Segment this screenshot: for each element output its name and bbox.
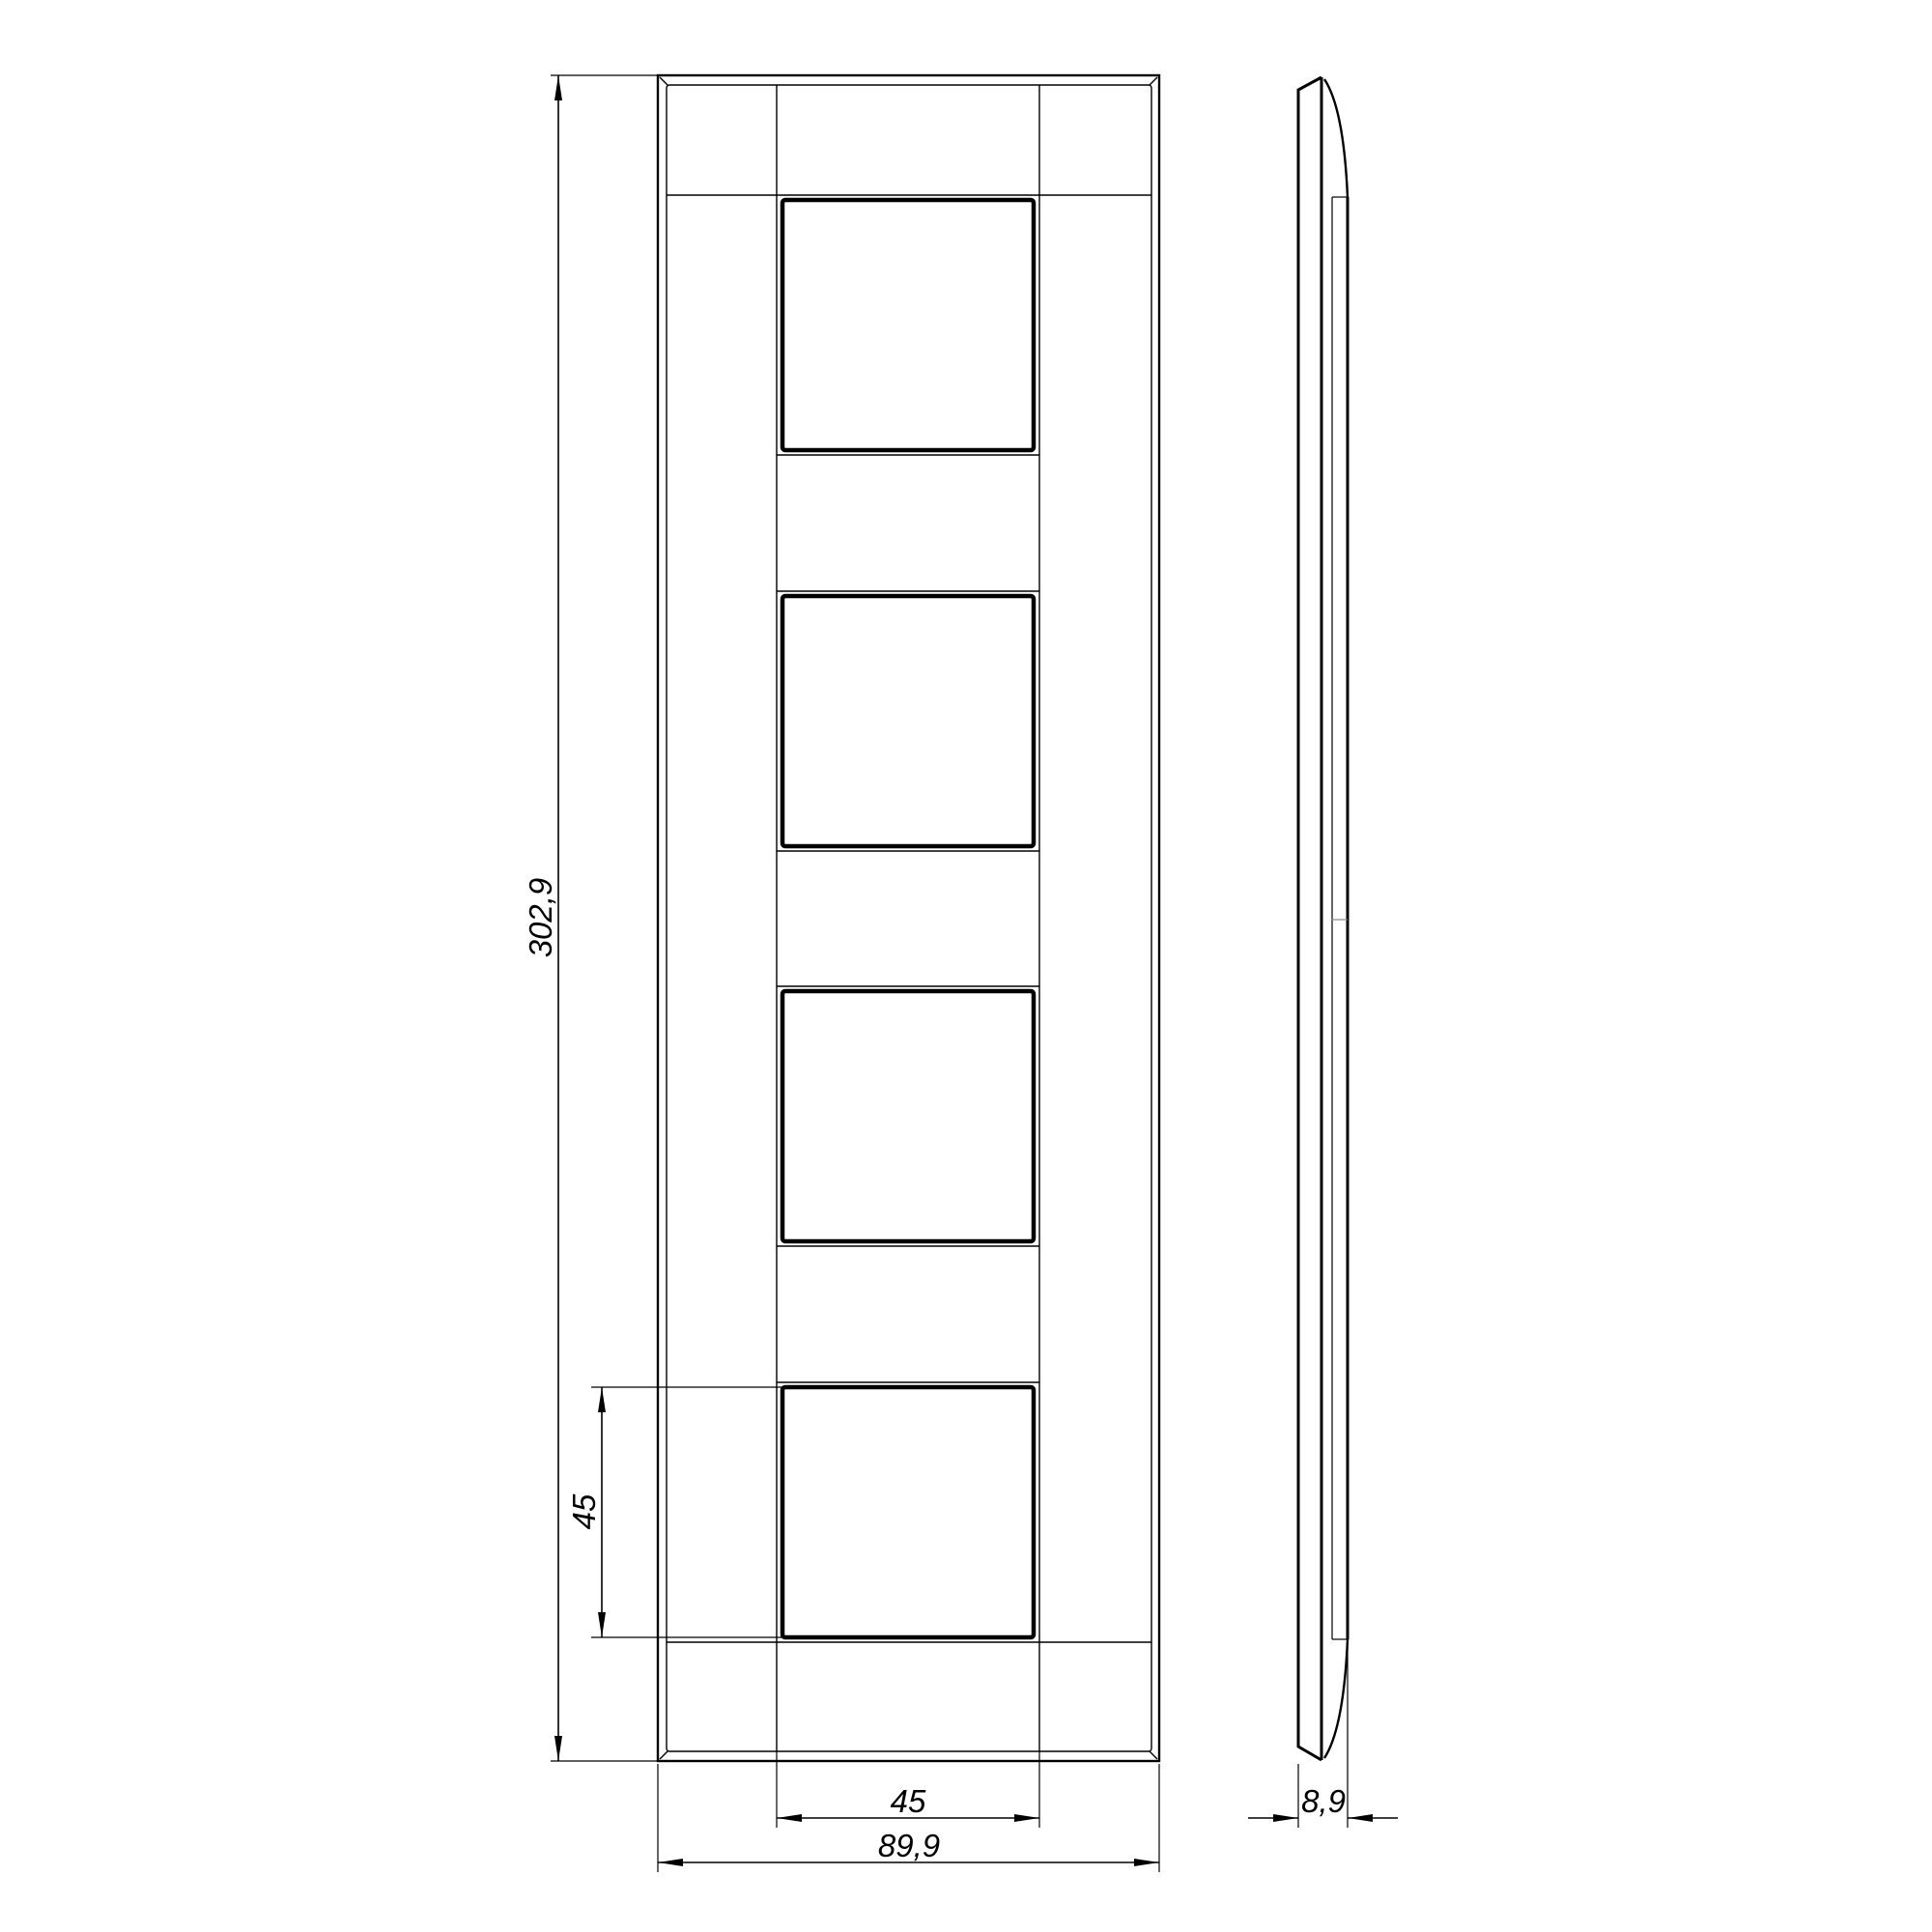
arrowhead-left — [658, 1859, 683, 1866]
dimension-label-opening-height: 45 — [566, 1493, 602, 1529]
corner-chamfer-top-left — [660, 77, 668, 85]
opening-2 — [782, 596, 1034, 846]
arrowhead-right — [1014, 1814, 1039, 1822]
technical-drawing: 302,9 45 45 89,9 8,9 — [0, 0, 1932, 1932]
frame-bevel-edge — [667, 85, 1151, 1751]
dimension-label-overall-height: 302,9 — [523, 878, 558, 958]
dimension-label-thickness: 8,9 — [1301, 1783, 1346, 1819]
dimension-opening-height: 45 — [566, 1387, 786, 1637]
arrowhead-up — [598, 1387, 606, 1412]
dimension-opening-width: 45 — [777, 1751, 1039, 1828]
opening-3 — [782, 991, 1034, 1241]
arrowhead-left — [1348, 1814, 1373, 1822]
drawing-sheet: 302,9 45 45 89,9 8,9 — [0, 0, 1932, 1932]
side-view — [1298, 77, 1348, 1760]
dimension-label-overall-width: 89,9 — [878, 1828, 940, 1863]
dimension-label-opening-width: 45 — [891, 1783, 926, 1819]
corner-chamfer-bottom-right — [1150, 1751, 1157, 1759]
arrowhead-up — [554, 75, 562, 100]
arrowhead-down — [554, 1736, 562, 1761]
corner-chamfer-bottom-left — [660, 1751, 668, 1759]
side-top-curve — [1324, 79, 1348, 197]
arrowhead-right — [1273, 1814, 1298, 1822]
side-back-contour — [1298, 77, 1321, 1760]
arrowhead-right — [1134, 1859, 1159, 1866]
side-bottom-curve — [1324, 1639, 1348, 1758]
arrowhead-down — [598, 1612, 606, 1637]
opening-1 — [782, 200, 1034, 450]
opening-4 — [782, 1387, 1034, 1637]
frame-outer-outline — [658, 75, 1159, 1761]
front-view — [658, 75, 1159, 1761]
corner-chamfer-top-right — [1150, 77, 1157, 85]
arrowhead-left — [777, 1814, 802, 1822]
